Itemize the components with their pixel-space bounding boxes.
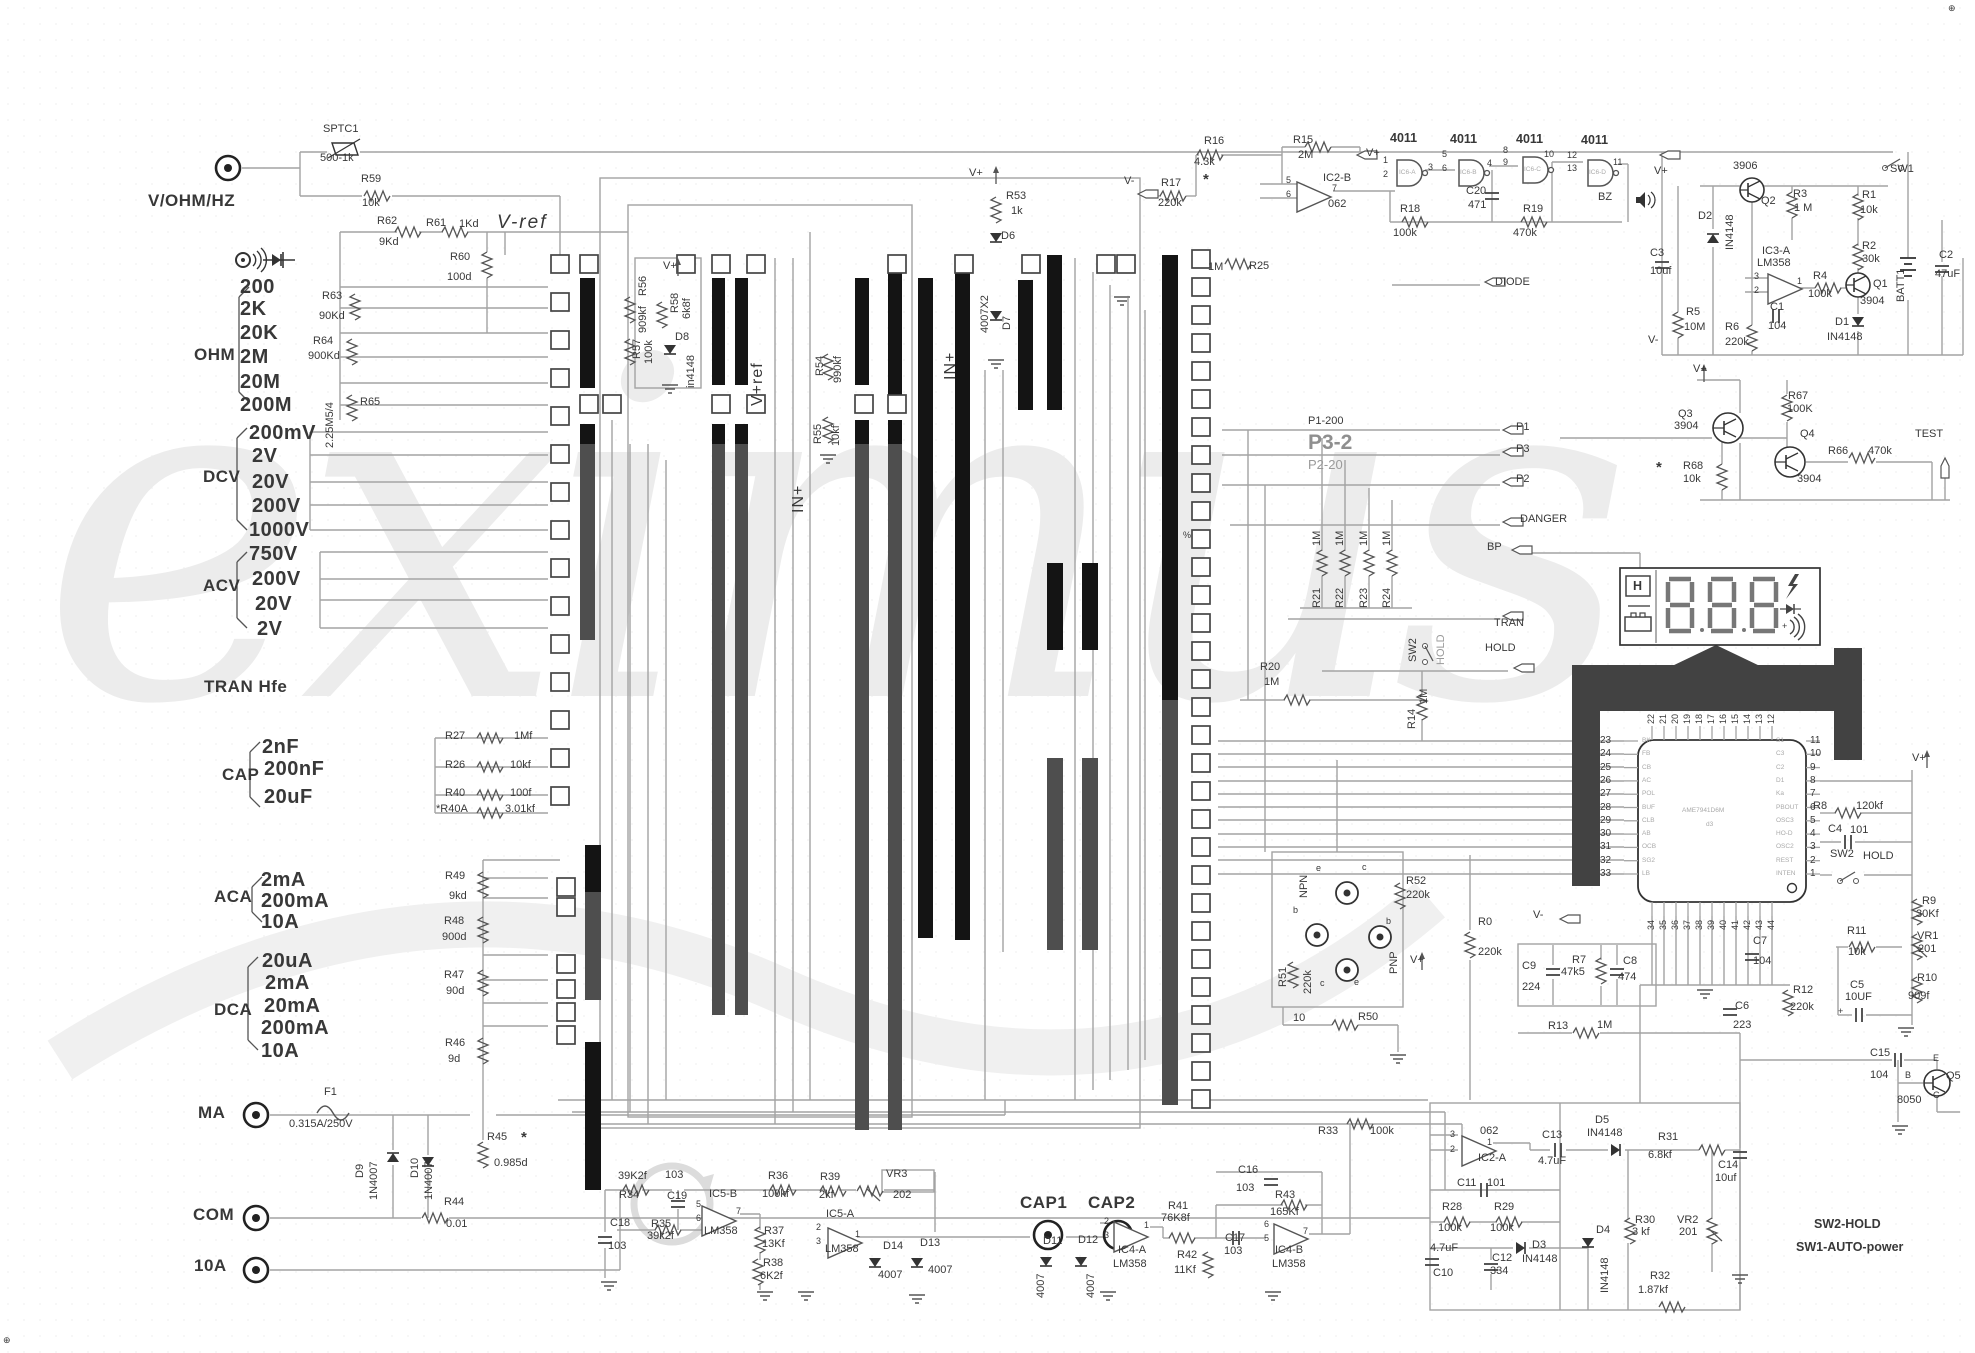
label: 0.985d: [494, 1158, 528, 1169]
label: R30: [1635, 1215, 1655, 1226]
label: R31: [1658, 1132, 1678, 1143]
contact-pad: [551, 445, 569, 463]
ic-pin-number: 31: [1600, 842, 1611, 852]
label: 0.315A/250V: [289, 1119, 353, 1130]
label: R64: [313, 336, 333, 347]
ic-pin-number: 36: [1671, 920, 1680, 930]
label: 062: [1480, 1126, 1498, 1137]
label: 3: [1450, 1130, 1455, 1139]
ic-pin-function: REST: [1776, 858, 1793, 865]
label: CAP1: [1020, 1194, 1067, 1211]
label: 200nF: [264, 759, 324, 779]
label: VR1: [1917, 931, 1938, 942]
label: SW2: [1830, 849, 1854, 860]
label: 1N4007: [369, 1161, 380, 1200]
label: e: [1354, 978, 1359, 987]
contact-bar: [580, 444, 595, 640]
contact-bar: [855, 278, 869, 385]
contact-pad: [888, 255, 906, 273]
label: 990kf: [833, 356, 844, 383]
diode-symbol: [1582, 1238, 1594, 1247]
label: 200mA: [261, 891, 329, 911]
label: 30k: [1862, 254, 1880, 265]
contact-pad: [1192, 418, 1210, 436]
diode-symbol: [1611, 1144, 1620, 1156]
label: 1: [1383, 156, 1388, 165]
label: 1 M: [1794, 203, 1812, 214]
label: SW2: [1408, 638, 1419, 662]
ic-pin-number: 23: [1600, 736, 1611, 746]
socket-pin-dot: [1314, 932, 1321, 939]
net-flag: [1560, 915, 1580, 923]
label: 6K2f: [760, 1271, 783, 1282]
contact-pad: [1192, 390, 1210, 408]
ic-pin-number: 20: [1671, 714, 1680, 724]
label: 224: [1522, 982, 1540, 993]
label: +: [1838, 1007, 1843, 1016]
banana-jack-dot: [252, 1214, 260, 1222]
buzzer-icon: [1636, 192, 1645, 208]
label: SW2-HOLD: [1814, 1218, 1881, 1231]
lcd-pointer-shape: [1834, 648, 1862, 760]
label: R46: [445, 1038, 465, 1049]
ic-pin-number: 12: [1767, 714, 1776, 724]
label: C10: [1433, 1268, 1453, 1279]
label: R47: [444, 970, 464, 981]
contact-bar: [1162, 255, 1178, 700]
label: 220k: [1725, 337, 1749, 348]
resistor-symbol: [1573, 1028, 1599, 1038]
label: 2M: [1298, 150, 1313, 161]
label: 2: [1754, 286, 1759, 295]
label: R5: [1686, 307, 1700, 318]
label: 220k: [1406, 890, 1430, 901]
resistor-symbol: [1465, 932, 1475, 958]
label: 20uA: [262, 951, 313, 971]
label: C16: [1238, 1165, 1258, 1176]
label: R42: [1177, 1250, 1197, 1261]
contact-pad: [551, 331, 569, 349]
label: V+: [1654, 166, 1668, 177]
label: 4007: [878, 1270, 902, 1281]
label: 11: [1613, 158, 1622, 167]
label: ⊕: [1948, 4, 1956, 13]
contact-pad: [1117, 255, 1135, 273]
label: C19: [667, 1191, 687, 1202]
label: 104: [1753, 956, 1771, 967]
label: P2: [1516, 474, 1529, 485]
nand-gate-bubble: [1423, 171, 1428, 176]
resistor-symbol: [1317, 550, 1327, 576]
resistor-symbol: [625, 297, 635, 323]
contact-bar: [735, 444, 748, 1015]
label: 165Kf: [1270, 1207, 1299, 1218]
label: 20mA: [264, 996, 320, 1016]
resistor-symbol: [657, 302, 667, 328]
label: 223: [1733, 1020, 1751, 1031]
contact-pad: [1192, 866, 1210, 884]
label: CAP2: [1088, 1194, 1135, 1211]
ic-pin-number: 5: [1810, 816, 1816, 826]
label: 1M: [1208, 262, 1223, 273]
ic-pin-number: 25: [1600, 763, 1611, 773]
contact-pad: [551, 749, 569, 767]
banana-jack-dot: [224, 164, 232, 172]
label: R53: [1006, 191, 1026, 202]
label: R50: [1358, 1012, 1378, 1023]
lcd-battery-icon: [1631, 613, 1636, 617]
label: R49: [445, 871, 465, 882]
label: R63: [322, 291, 342, 302]
label: D7: [1002, 316, 1013, 330]
ic-pin-number: 42: [1743, 920, 1752, 930]
contact-bar: [855, 444, 869, 1130]
label: 200mV: [249, 423, 316, 443]
contact-pad: [551, 635, 569, 653]
label: R51: [1278, 967, 1289, 987]
label: 1M: [1359, 531, 1370, 546]
label: 10uf: [1650, 266, 1671, 277]
label: 1Kd: [459, 219, 479, 230]
label: R38: [763, 1258, 783, 1269]
resistor-symbol: [1387, 550, 1397, 576]
contact-bar: [1082, 563, 1098, 650]
label: 1M: [1419, 689, 1430, 704]
label: 100k: [1808, 289, 1832, 300]
ic-part-number: d3: [1706, 822, 1713, 829]
label: 10uf: [1715, 1173, 1736, 1184]
continuity-icon-dot: [241, 258, 245, 262]
label: R62: [377, 216, 397, 227]
label: C13: [1542, 1130, 1562, 1141]
label: 47k5: [1561, 967, 1585, 978]
label: 4.3k: [1194, 157, 1215, 168]
label: 103: [1224, 1246, 1242, 1257]
label: TRAN: [1494, 618, 1524, 629]
selector-brace: [250, 797, 260, 807]
label: COM: [193, 1206, 234, 1223]
label: 101: [1850, 825, 1868, 836]
label: C11: [1457, 1178, 1476, 1189]
contact-pad: [1192, 698, 1210, 716]
label: 103: [1236, 1183, 1254, 1194]
label: R44: [444, 1197, 464, 1208]
label: MA: [198, 1104, 225, 1121]
label: 10A: [261, 1041, 299, 1061]
label: R7: [1572, 955, 1586, 966]
net-flag: [1514, 664, 1534, 672]
resistor-symbol: [1364, 550, 1374, 576]
ic-pin-number: 30: [1600, 829, 1611, 839]
label: e: [1316, 864, 1321, 873]
label: R66: [1828, 446, 1848, 457]
label: 20M: [240, 372, 280, 392]
contact-pad: [1192, 586, 1210, 604]
diode-symbol: [869, 1258, 881, 1267]
label: 909kf: [638, 306, 649, 333]
label: SW1: [1890, 164, 1914, 175]
label: 201: [1918, 944, 1936, 955]
contact-pad: [1192, 922, 1210, 940]
label: P2-20: [1308, 458, 1343, 471]
label: 10M: [1684, 322, 1705, 333]
label: 10A: [194, 1257, 227, 1274]
ic-pin-function: PBOUT: [1776, 805, 1798, 812]
label: C: [1933, 1091, 1940, 1100]
label: R35: [651, 1219, 671, 1230]
contact-pad: [712, 395, 730, 413]
ic-pin-number: 24: [1600, 749, 1611, 759]
label: IN4148: [1587, 1128, 1622, 1139]
label: 8: [1503, 146, 1508, 155]
label: IN+: [943, 352, 959, 380]
nand-gate-bubble: [1614, 171, 1619, 176]
label: R17: [1161, 178, 1181, 189]
label: 2mA: [265, 973, 310, 993]
contact-pad: [551, 711, 569, 729]
contact-pad: [1192, 950, 1210, 968]
label: R22: [1335, 588, 1346, 608]
contact-bar: [1047, 758, 1063, 950]
label: 2: [816, 1223, 821, 1232]
label: D8: [675, 332, 689, 343]
diode-symbol: [1075, 1257, 1087, 1266]
contact-pad: [603, 395, 621, 413]
label: 2K: [240, 299, 267, 319]
label: V-: [1648, 335, 1658, 346]
label: R2: [1862, 241, 1876, 252]
label: R27: [445, 731, 465, 742]
contact-bar: [585, 845, 601, 892]
label: D9: [355, 1164, 366, 1178]
label: R54: [815, 356, 826, 376]
label: 39K2f: [618, 1171, 647, 1182]
ic-pin-function: D1: [1776, 778, 1784, 785]
diode-symbol: [1852, 317, 1864, 326]
label: R41: [1168, 1201, 1188, 1212]
switch-arm: [1840, 872, 1855, 881]
label: DCV: [203, 468, 240, 485]
ic-pin-function: BK: [1642, 738, 1651, 745]
label: R39: [820, 1172, 840, 1183]
contact-pad: [1192, 810, 1210, 828]
label: R20: [1260, 662, 1280, 673]
label: VR3: [886, 1169, 907, 1180]
label: 9kd: [449, 891, 467, 902]
contact-pad: [747, 255, 765, 273]
contact-bar: [580, 278, 595, 388]
ic-pin-number: 41: [1731, 920, 1740, 930]
contact-bar: [712, 278, 725, 385]
label: D13: [920, 1238, 940, 1249]
label: 90Kd: [319, 311, 345, 322]
label: IC3-A: [1762, 246, 1790, 257]
ic-pin-number: 21: [1659, 714, 1668, 724]
label: IC6-B: [1460, 170, 1477, 177]
label: R23: [1359, 588, 1370, 608]
contact-pad: [551, 369, 569, 387]
ic-pin-number: 2: [1810, 856, 1816, 866]
label: V-: [1124, 176, 1134, 187]
contact-pad: [557, 898, 575, 916]
label: 100K: [1787, 404, 1813, 415]
label: 4007: [1086, 1274, 1097, 1298]
label: OHM: [194, 346, 235, 363]
resistor-symbol: [1717, 464, 1727, 490]
contact-bar: [1018, 280, 1033, 410]
ic-part-number: AME7941D6M: [1682, 808, 1724, 815]
ic-pin-number: 22: [1647, 714, 1656, 724]
ic-pin-number: 11: [1810, 736, 1820, 746]
main-ic-pin1-mark: [1788, 884, 1797, 893]
label: 200M: [240, 395, 292, 415]
label: TRAN Hfe: [204, 678, 287, 695]
selector-brace: [248, 1040, 258, 1050]
label: 100kf: [762, 1189, 789, 1200]
contact-pad: [1192, 978, 1210, 996]
label: 10k: [1848, 947, 1866, 958]
label: 470k: [1513, 228, 1537, 239]
label: IN+: [791, 485, 807, 513]
ic-pin-number: 19: [1683, 714, 1692, 724]
banana-jack-dot: [252, 1266, 260, 1274]
socket-pin-dot: [1377, 934, 1384, 941]
label: D3: [1532, 1240, 1546, 1251]
label: 6: [1442, 164, 1447, 173]
contact-pad: [1192, 1034, 1210, 1052]
label: 100d: [447, 272, 471, 283]
label: V+ref: [750, 362, 766, 406]
label: D12: [1078, 1235, 1098, 1246]
label: R61: [426, 218, 446, 229]
label: VR2: [1677, 1215, 1698, 1226]
contact-pad: [551, 597, 569, 615]
contact-bar: [1082, 758, 1098, 950]
label: V+: [1410, 955, 1424, 966]
label: C20: [1466, 186, 1486, 197]
label: BZ: [1598, 192, 1612, 203]
contact-bar: [888, 420, 902, 444]
label: 5: [1286, 176, 1291, 185]
label: R55: [813, 424, 824, 444]
label: 1M: [1312, 531, 1323, 546]
label: Q2: [1761, 196, 1776, 207]
diode-symbol: [664, 345, 676, 354]
label: 1M: [1335, 531, 1346, 546]
resistor-symbol: [991, 197, 1001, 223]
label: Q4: [1800, 429, 1815, 440]
contact-bar: [580, 424, 595, 444]
resistor-symbol: [350, 294, 360, 320]
label: 8050: [1897, 1095, 1921, 1106]
label: 3: [1104, 1231, 1109, 1240]
label: 4007: [928, 1265, 952, 1276]
ic-pin-function: POL: [1642, 791, 1655, 798]
diode-symbol: [1707, 234, 1719, 243]
label: 200V: [252, 496, 301, 516]
label: D1: [1835, 317, 1849, 328]
label: SW1-AUTO-power: [1796, 1241, 1903, 1254]
label: 100k: [644, 340, 655, 364]
label: P1-200: [1308, 416, 1343, 427]
ic-pin-number: 43: [1755, 920, 1764, 930]
ic-pin-number: 40: [1719, 920, 1728, 930]
label: 1k: [1011, 206, 1023, 217]
label: ACV: [203, 577, 240, 594]
label: 2: [1104, 1217, 1109, 1226]
ic-pin-function: INTEN: [1776, 871, 1796, 878]
ic-pin-function: LB: [1642, 871, 1650, 878]
label: 104: [1870, 1070, 1888, 1081]
label: 4011: [1581, 134, 1608, 147]
label: 220k: [1303, 970, 1314, 994]
label: IC2-A: [1478, 1153, 1506, 1164]
ic-pin-function: SG2: [1642, 858, 1655, 865]
label: R29: [1494, 1202, 1514, 1213]
contact-pad: [1192, 754, 1210, 772]
label: *R40A: [436, 804, 468, 815]
label: b: [1386, 917, 1391, 926]
label: R21: [1312, 588, 1323, 608]
label: 220k: [1158, 198, 1182, 209]
label: R25: [1249, 261, 1269, 272]
label: R37: [764, 1226, 784, 1237]
label: R52: [1406, 876, 1426, 887]
label: C7: [1753, 936, 1767, 947]
ic-pin-function: AC: [1642, 778, 1651, 785]
label: 3.01kf: [505, 804, 535, 815]
label: R11: [1847, 926, 1866, 937]
resistor-symbol: [478, 1142, 488, 1168]
label: 474: [1618, 972, 1636, 983]
lcd-decimal-point: [1742, 628, 1746, 632]
opamp-symbol: [1297, 182, 1331, 212]
label: *: [1203, 172, 1209, 187]
contact-pad: [551, 673, 569, 691]
contact-pad: [712, 255, 730, 273]
contact-pad: [1192, 670, 1210, 688]
ic-pin-number: 35: [1659, 920, 1668, 930]
label: BATT1: [1896, 269, 1907, 302]
contact-pad: [557, 1003, 575, 1021]
selector-brace: [250, 742, 260, 752]
label: %: [1183, 531, 1191, 540]
resistor-symbol: [1169, 1233, 1195, 1243]
contact-pad: [551, 255, 569, 273]
label: 100k: [1490, 1223, 1514, 1234]
label: 3: [816, 1237, 821, 1246]
contact-pad: [955, 255, 973, 273]
label: 100k: [1438, 1223, 1462, 1234]
label: D6: [1001, 231, 1015, 242]
ic-pin-number: 32: [1600, 856, 1611, 866]
label: 7: [1332, 184, 1337, 193]
label: 4011: [1516, 133, 1543, 146]
ic-pin-function: BUF: [1642, 805, 1655, 812]
ic-pin-number: 37: [1683, 920, 1692, 930]
label: 12: [1567, 151, 1577, 160]
label: 104: [1768, 321, 1786, 332]
label: 2mA: [261, 870, 306, 890]
label: 103: [608, 1241, 626, 1252]
contact-pad: [1192, 362, 1210, 380]
ic-pin-function: C3: [1776, 751, 1784, 758]
switch-contact: [1854, 879, 1859, 884]
label: 3906: [1733, 161, 1757, 172]
label: 13Kf: [762, 1239, 785, 1250]
label: TEST: [1915, 429, 1943, 440]
contact-pad: [1192, 838, 1210, 856]
